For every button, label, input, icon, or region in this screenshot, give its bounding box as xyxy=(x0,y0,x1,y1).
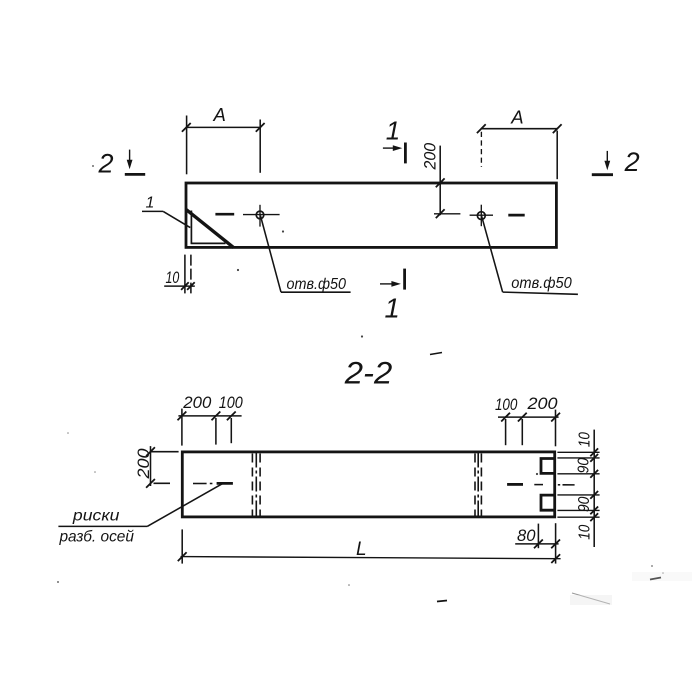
svg-text:L: L xyxy=(356,539,367,560)
svg-text:200: 200 xyxy=(420,142,439,170)
svg-text:1: 1 xyxy=(145,195,154,212)
svg-text:разб. осей: разб. осей xyxy=(58,529,134,546)
svg-text:10: 10 xyxy=(577,432,594,447)
svg-text:80: 80 xyxy=(517,526,536,545)
svg-text:200: 200 xyxy=(526,394,558,413)
svg-text:200: 200 xyxy=(134,448,153,480)
svg-text:A: A xyxy=(213,104,226,125)
svg-text:90: 90 xyxy=(576,458,593,474)
svg-text:100: 100 xyxy=(495,395,518,414)
svg-text:90: 90 xyxy=(576,497,593,513)
svg-text:риски: риски xyxy=(72,507,120,524)
svg-text:2: 2 xyxy=(624,147,640,177)
svg-text:отв.ф50: отв.ф50 xyxy=(511,275,572,292)
svg-text:A: A xyxy=(510,107,523,128)
svg-text:1: 1 xyxy=(385,292,400,323)
svg-text:10: 10 xyxy=(577,525,594,540)
svg-text:2-2: 2-2 xyxy=(344,354,393,390)
svg-text:200: 200 xyxy=(182,393,212,412)
svg-text:отв.ф50: отв.ф50 xyxy=(287,276,347,293)
svg-text:1: 1 xyxy=(386,116,400,146)
svg-text:100: 100 xyxy=(219,393,243,412)
svg-text:10: 10 xyxy=(166,268,180,287)
svg-text:2: 2 xyxy=(97,149,113,179)
